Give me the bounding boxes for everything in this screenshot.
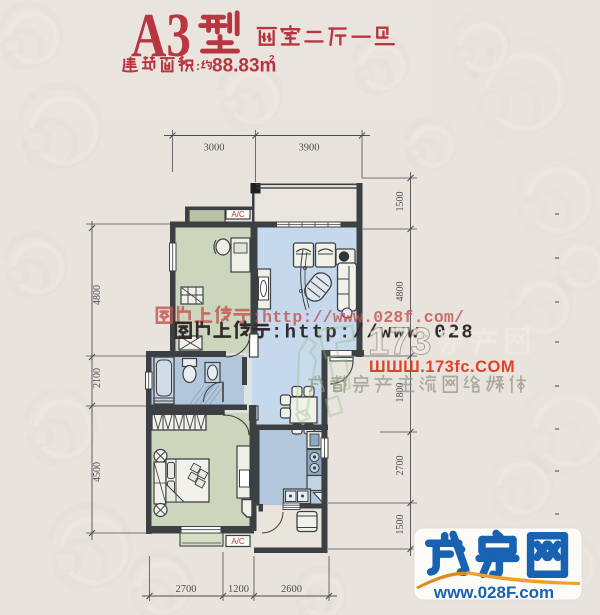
svg-text:ШШШ.173fc.COM: ШШШ.173fc.COM: [369, 358, 515, 376]
svg-text:3000: 3000: [204, 143, 225, 154]
svg-text:4800: 4800: [395, 282, 406, 302]
svg-text:www.028F.com: www.028F.com: [433, 583, 554, 602]
svg-text:2: 2: [269, 54, 275, 65]
svg-text:4500: 4500: [92, 462, 103, 482]
svg-text:1500: 1500: [395, 515, 406, 535]
svg-text:173: 173: [368, 321, 431, 363]
svg-text:A/C: A/C: [231, 210, 245, 219]
svg-text:1800: 1800: [395, 383, 406, 403]
svg-text:88.83m: 88.83m: [212, 56, 276, 77]
svg-text:2700: 2700: [395, 456, 406, 476]
svg-text::: :: [196, 59, 200, 73]
svg-text:A/C: A/C: [231, 537, 245, 546]
svg-text:4800: 4800: [92, 285, 103, 305]
svg-text:2100: 2100: [92, 368, 103, 388]
svg-text:1200: 1200: [228, 584, 249, 595]
svg-text:2700: 2700: [176, 584, 197, 595]
svg-text:3900: 3900: [299, 143, 320, 154]
svg-text:1500: 1500: [395, 192, 406, 212]
svg-text:2600: 2600: [281, 584, 302, 595]
